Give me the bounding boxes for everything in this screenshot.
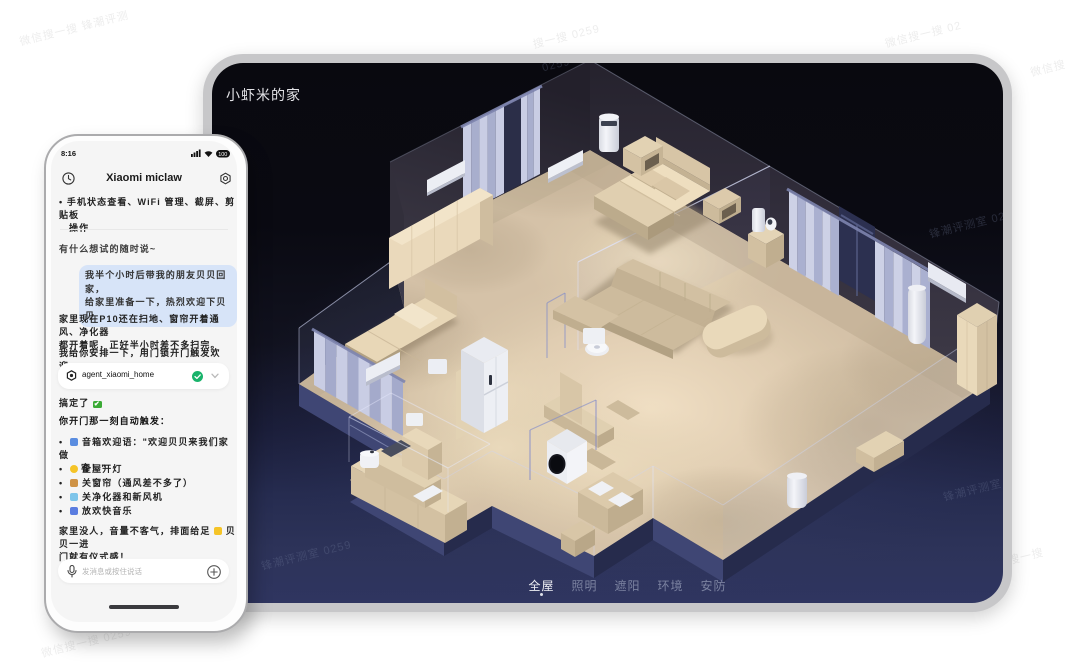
svg-text:100: 100 [218, 152, 227, 158]
